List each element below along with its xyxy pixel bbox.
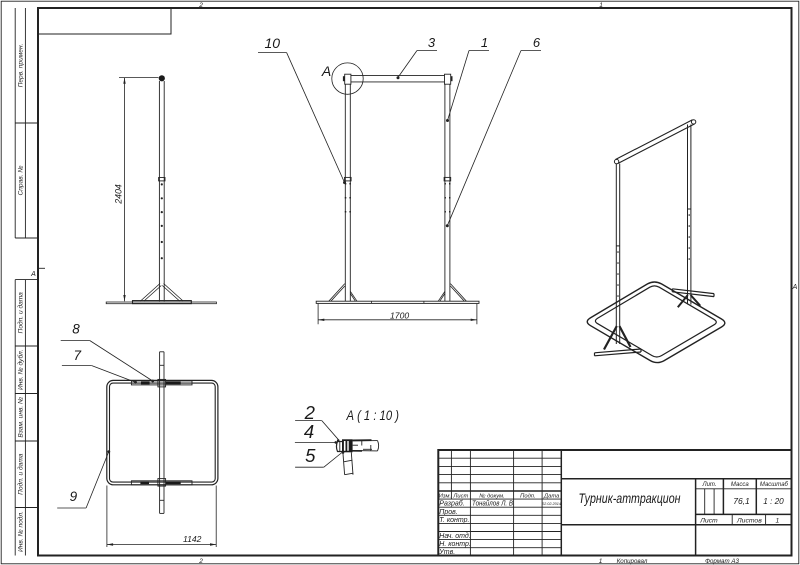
svg-text:Перв. примен.: Перв. примен. (18, 43, 25, 87)
svg-text:№ докум.: № докум. (479, 494, 505, 500)
svg-text:Копировал: Копировал (617, 558, 648, 565)
svg-text:2404: 2404 (113, 184, 123, 205)
svg-text:2: 2 (198, 558, 203, 565)
svg-text:Инв. № дубл.: Инв. № дубл. (17, 349, 25, 390)
svg-text:3: 3 (428, 35, 436, 50)
svg-text:Подп. и дата: Подп. и дата (17, 453, 25, 495)
svg-text:А: А (321, 63, 331, 79)
svg-text:1: 1 (481, 35, 488, 50)
svg-text:Взам. инв. №: Взам. инв. № (18, 397, 25, 438)
svg-text:Разраб.: Разраб. (439, 500, 464, 508)
svg-text:Турник-аттракцион: Турник-аттракцион (579, 490, 681, 506)
svg-text:Лист: Лист (452, 494, 468, 500)
svg-text:9: 9 (70, 489, 78, 504)
svg-text:10: 10 (265, 35, 281, 51)
svg-text:76,1: 76,1 (733, 496, 750, 506)
svg-text:Дата: Дата (543, 494, 560, 500)
svg-text:1: 1 (776, 517, 780, 524)
svg-text:1 : 20: 1 : 20 (763, 497, 784, 506)
svg-text:Утв.: Утв. (438, 549, 455, 556)
svg-text:1: 1 (599, 558, 603, 565)
svg-text:02.02.2014: 02.02.2014 (542, 502, 561, 506)
svg-text:4: 4 (304, 421, 314, 442)
svg-text:Нач. отд.: Нач. отд. (439, 532, 471, 540)
svg-text:Т. контр.: Т. контр. (439, 517, 469, 524)
svg-text:Изм.: Изм. (439, 494, 451, 500)
svg-text:1142: 1142 (183, 534, 202, 544)
svg-text:1700: 1700 (390, 310, 409, 320)
svg-text:Формат А3: Формат А3 (705, 558, 739, 565)
svg-text:А ( 1 : 10 ): А ( 1 : 10 ) (346, 407, 399, 423)
svg-text:Листов: Листов (736, 517, 762, 524)
svg-text:Тонайлов Л. В: Тонайлов Л. В (472, 500, 513, 508)
svg-text:А: А (792, 284, 798, 291)
svg-text:2: 2 (198, 2, 203, 9)
svg-text:Н. контр.: Н. контр. (439, 541, 471, 548)
svg-text:Справ. №: Справ. № (18, 166, 25, 196)
svg-text:6: 6 (533, 35, 541, 50)
svg-text:5: 5 (305, 445, 316, 466)
svg-text:Подп. и дата: Подп. и дата (17, 292, 25, 334)
svg-text:8: 8 (72, 322, 80, 337)
svg-text:2: 2 (304, 402, 316, 423)
svg-text:Лит.: Лит. (701, 482, 716, 488)
svg-text:Лист: Лист (699, 517, 718, 524)
svg-text:А: А (30, 271, 36, 278)
svg-text:Инв. № подл.: Инв. № подл. (17, 511, 25, 552)
svg-text:Масса: Масса (731, 482, 749, 488)
svg-text:Пров.: Пров. (439, 509, 458, 516)
svg-text:7: 7 (74, 348, 82, 363)
svg-text:Масштаб: Масштаб (760, 482, 789, 488)
svg-text:Подп.: Подп. (520, 494, 535, 500)
svg-text:1: 1 (599, 2, 603, 9)
